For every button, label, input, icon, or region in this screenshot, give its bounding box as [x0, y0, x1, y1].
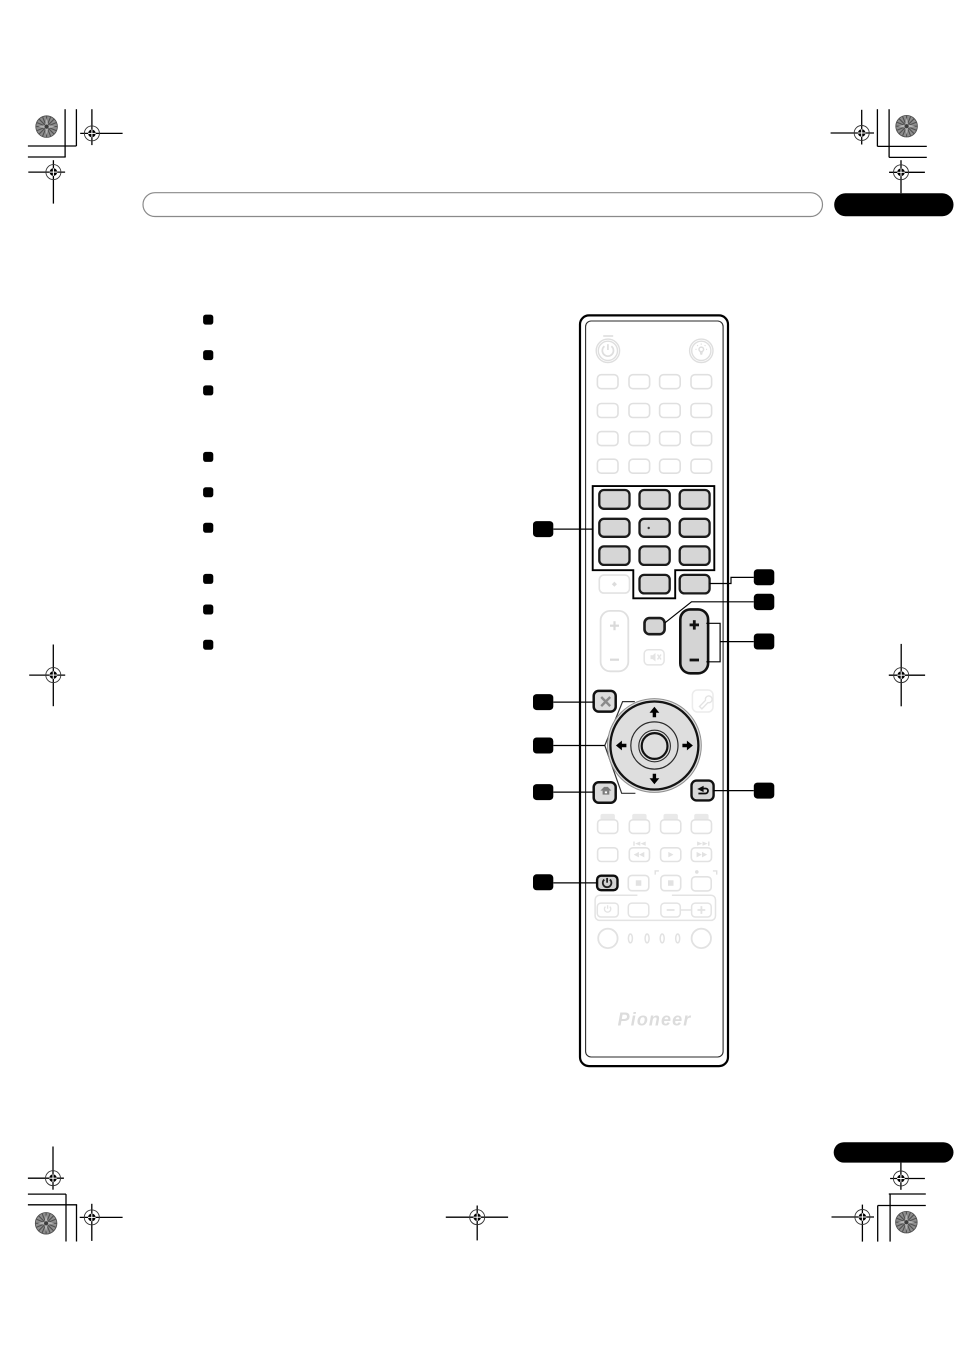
svg-text:Pioneer: Pioneer — [618, 1010, 692, 1030]
